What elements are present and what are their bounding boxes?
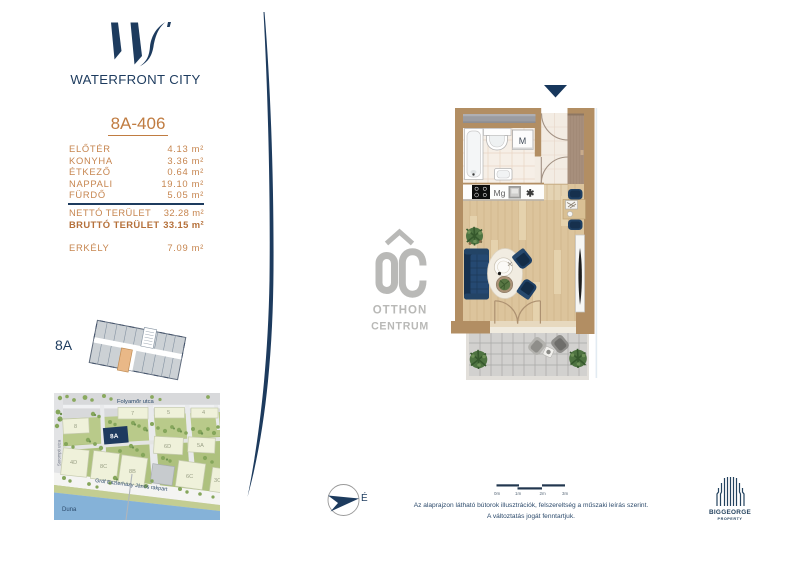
svg-text:8B: 8B: [129, 469, 136, 475]
svg-text:Mg: Mg: [494, 188, 506, 198]
svg-text:6D: 6D: [164, 444, 171, 450]
svg-text:2m: 2m: [540, 491, 547, 496]
svg-text:4: 4: [202, 410, 205, 416]
svg-text:0m: 0m: [494, 491, 501, 496]
svg-text:M: M: [519, 136, 527, 146]
svg-text:5A: 5A: [197, 443, 204, 449]
svg-text:8C: 8C: [100, 464, 107, 470]
svg-text:Folyamőr utca: Folyamőr utca: [117, 399, 155, 405]
svg-text:PROPERTY: PROPERTY: [718, 517, 743, 521]
svg-text:BIGGEORGE: BIGGEORGE: [709, 509, 752, 516]
svg-text:6C: 6C: [186, 474, 193, 480]
svg-text:CENTRUM: CENTRUM: [371, 321, 429, 333]
svg-text:7: 7: [131, 411, 134, 417]
svg-text:Sorompó utca: Sorompó utca: [57, 439, 62, 466]
svg-text:5: 5: [167, 410, 170, 416]
svg-text:4D: 4D: [70, 460, 77, 466]
svg-text:8A: 8A: [110, 433, 119, 441]
svg-text:É: É: [361, 491, 368, 504]
svg-text:✱: ✱: [526, 189, 535, 200]
svg-text:3C: 3C: [214, 478, 220, 484]
svg-text:Duna: Duna: [62, 507, 77, 513]
svg-text:1m: 1m: [515, 491, 522, 496]
svg-text:3m: 3m: [562, 491, 569, 496]
svg-text:OTTHON: OTTHON: [373, 305, 428, 317]
svg-text:8: 8: [74, 424, 77, 430]
